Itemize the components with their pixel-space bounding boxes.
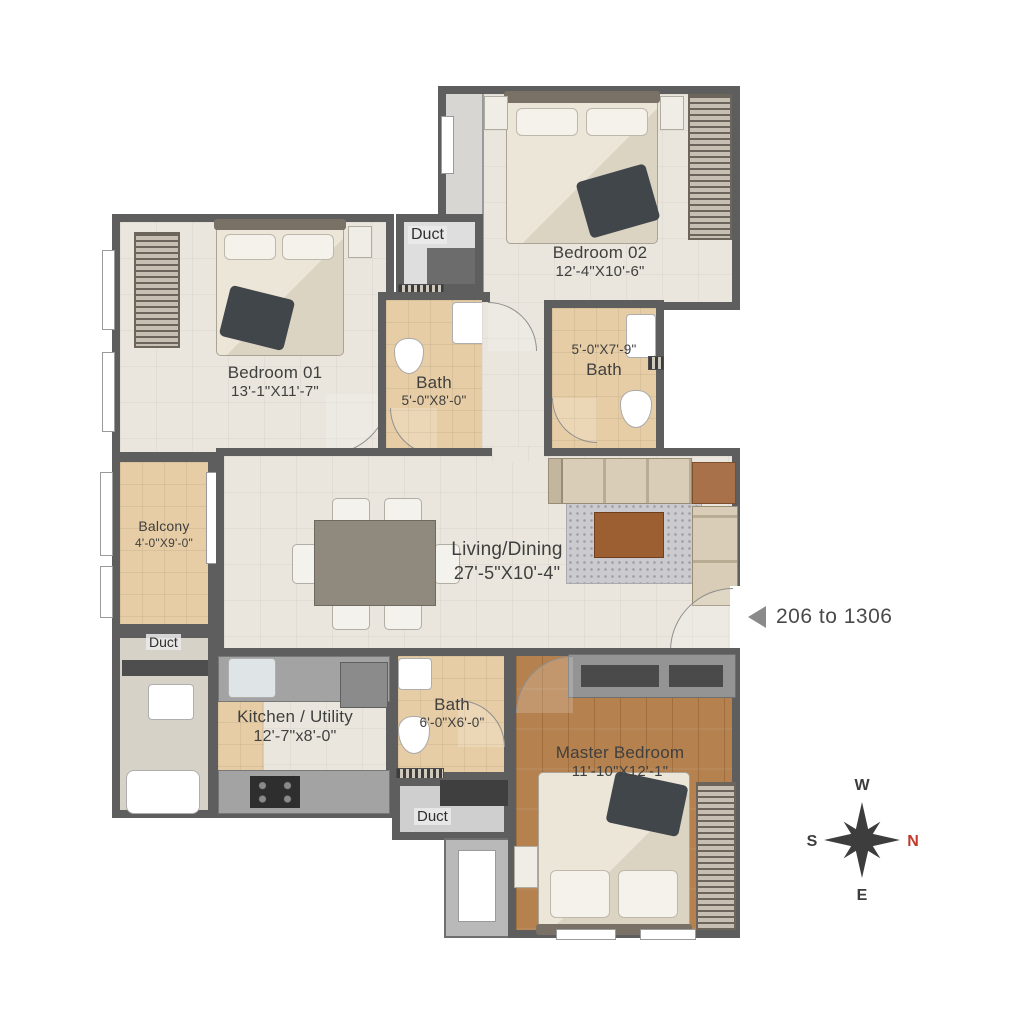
pillow-icon <box>618 870 678 918</box>
wardrobe-icon <box>134 232 180 348</box>
nightstand-icon <box>514 846 538 888</box>
headboard <box>504 91 660 103</box>
room-name: Balcony <box>116 518 212 536</box>
unit-range-label: 206 to 1306 <box>776 605 892 629</box>
basin-icon <box>148 684 194 720</box>
room-label-bath-3: Bath 6'-0"X6'-0" <box>400 694 504 732</box>
room-name: Bedroom 01 <box>170 362 380 383</box>
pillow-icon <box>586 108 648 136</box>
room-label-bath-1: Bath 5'-0"X8'-0" <box>384 372 484 410</box>
room-label-bedroom-01: Bedroom 01 13'-1"X11'-7" <box>170 362 380 402</box>
bed-icon <box>538 772 690 932</box>
arrow-left-icon <box>748 606 766 628</box>
room-label-kitchen: Kitchen / Utility 12'-7"x8'-0" <box>200 706 390 747</box>
duct-top-label: Duct <box>408 226 447 244</box>
headboard <box>214 219 346 230</box>
shaft-inner <box>458 850 496 922</box>
room-dims: 6'-0"X6'-0" <box>400 715 504 732</box>
room-name: Bath <box>400 694 504 715</box>
pillow-icon <box>516 108 578 136</box>
compass-rose: W S N E <box>800 762 924 902</box>
compass-east-label: E <box>857 887 868 902</box>
washing-machine-icon <box>126 770 200 814</box>
window-icon <box>556 929 616 940</box>
nightstand-icon <box>348 226 372 258</box>
side-table-icon <box>692 462 736 504</box>
window-icon <box>102 250 115 330</box>
room-label-living: Living/Dining 27'-5"X10'-4" <box>412 538 602 584</box>
bed-icon <box>216 222 344 356</box>
dresser-icon <box>568 654 736 698</box>
room-name: Bath <box>384 372 484 393</box>
floor-plan: Bedroom 02 12'-4"X10'-6" Duct Bedroom 01… <box>0 0 1020 1020</box>
sofa-armrest <box>548 458 562 504</box>
chair-icon <box>384 602 422 630</box>
compass-west-label: W <box>854 777 870 794</box>
window-icon <box>640 929 696 940</box>
room-dims: 12'-7"x8'-0" <box>200 727 390 747</box>
duct-shaft <box>440 780 510 806</box>
room-name: Bath <box>548 359 660 380</box>
room-name: Bedroom 02 <box>500 242 700 263</box>
duct-shaft <box>427 248 475 284</box>
room-name: Living/Dining <box>412 538 602 562</box>
room-dims: 5'-0"X7'-9" <box>548 342 660 359</box>
room-name: Kitchen / Utility <box>200 706 390 727</box>
window-icon <box>102 352 115 432</box>
compass-south-label: S <box>807 833 818 850</box>
nightstand-icon <box>660 96 684 130</box>
room-name: Master Bedroom <box>518 742 722 763</box>
duct-left-label: Duct <box>146 634 181 650</box>
room-label-balcony: Balcony 4'-0"X9'-0" <box>116 518 212 551</box>
bed-icon <box>506 94 658 244</box>
room-dims: 4'-0"X9'-0" <box>116 536 212 551</box>
pillow-icon <box>224 234 276 260</box>
sink-icon <box>228 658 276 698</box>
compass-star-main <box>824 802 900 878</box>
sink-icon <box>452 302 486 344</box>
duct-bottom-label: Duct <box>414 808 451 825</box>
compass-north-label: N <box>907 833 919 850</box>
hob-icon <box>250 776 300 808</box>
dresser-drawer <box>581 665 659 687</box>
wardrobe-icon <box>696 782 736 930</box>
room-label-master: Master Bedroom 11'-10"X12'-1" <box>518 742 722 782</box>
room-dims: 27'-5"X10'-4" <box>412 562 602 585</box>
shaft-column <box>444 838 512 938</box>
window-icon <box>100 566 113 618</box>
counter-icon <box>122 660 208 676</box>
pillow-icon <box>550 870 610 918</box>
opening <box>492 446 544 462</box>
room-label-bedroom-02: Bedroom 02 12'-4"X10'-6" <box>500 242 700 282</box>
pillow-icon <box>282 234 334 260</box>
nightstand-icon <box>484 96 508 130</box>
room-dims: 11'-10"X12'-1" <box>518 763 722 782</box>
unit-range-marker: 206 to 1306 <box>748 605 892 629</box>
fridge-icon <box>340 662 388 708</box>
wardrobe-icon <box>688 94 732 240</box>
coffee-table-icon <box>594 512 664 558</box>
sink-icon <box>398 658 432 690</box>
counter-icon <box>218 770 390 814</box>
chair-icon <box>332 602 370 630</box>
window-icon <box>100 472 113 556</box>
dresser-drawer <box>669 665 723 687</box>
room-dims: 13'-1"X11'-7" <box>170 383 380 402</box>
room-label-bath-2: 5'-0"X7'-9" Bath <box>548 342 660 380</box>
room-dims: 5'-0"X8'-0" <box>384 393 484 410</box>
room-dims: 12'-4"X10'-6" <box>500 263 700 282</box>
window-icon <box>441 116 454 174</box>
sofa-icon <box>562 458 692 504</box>
